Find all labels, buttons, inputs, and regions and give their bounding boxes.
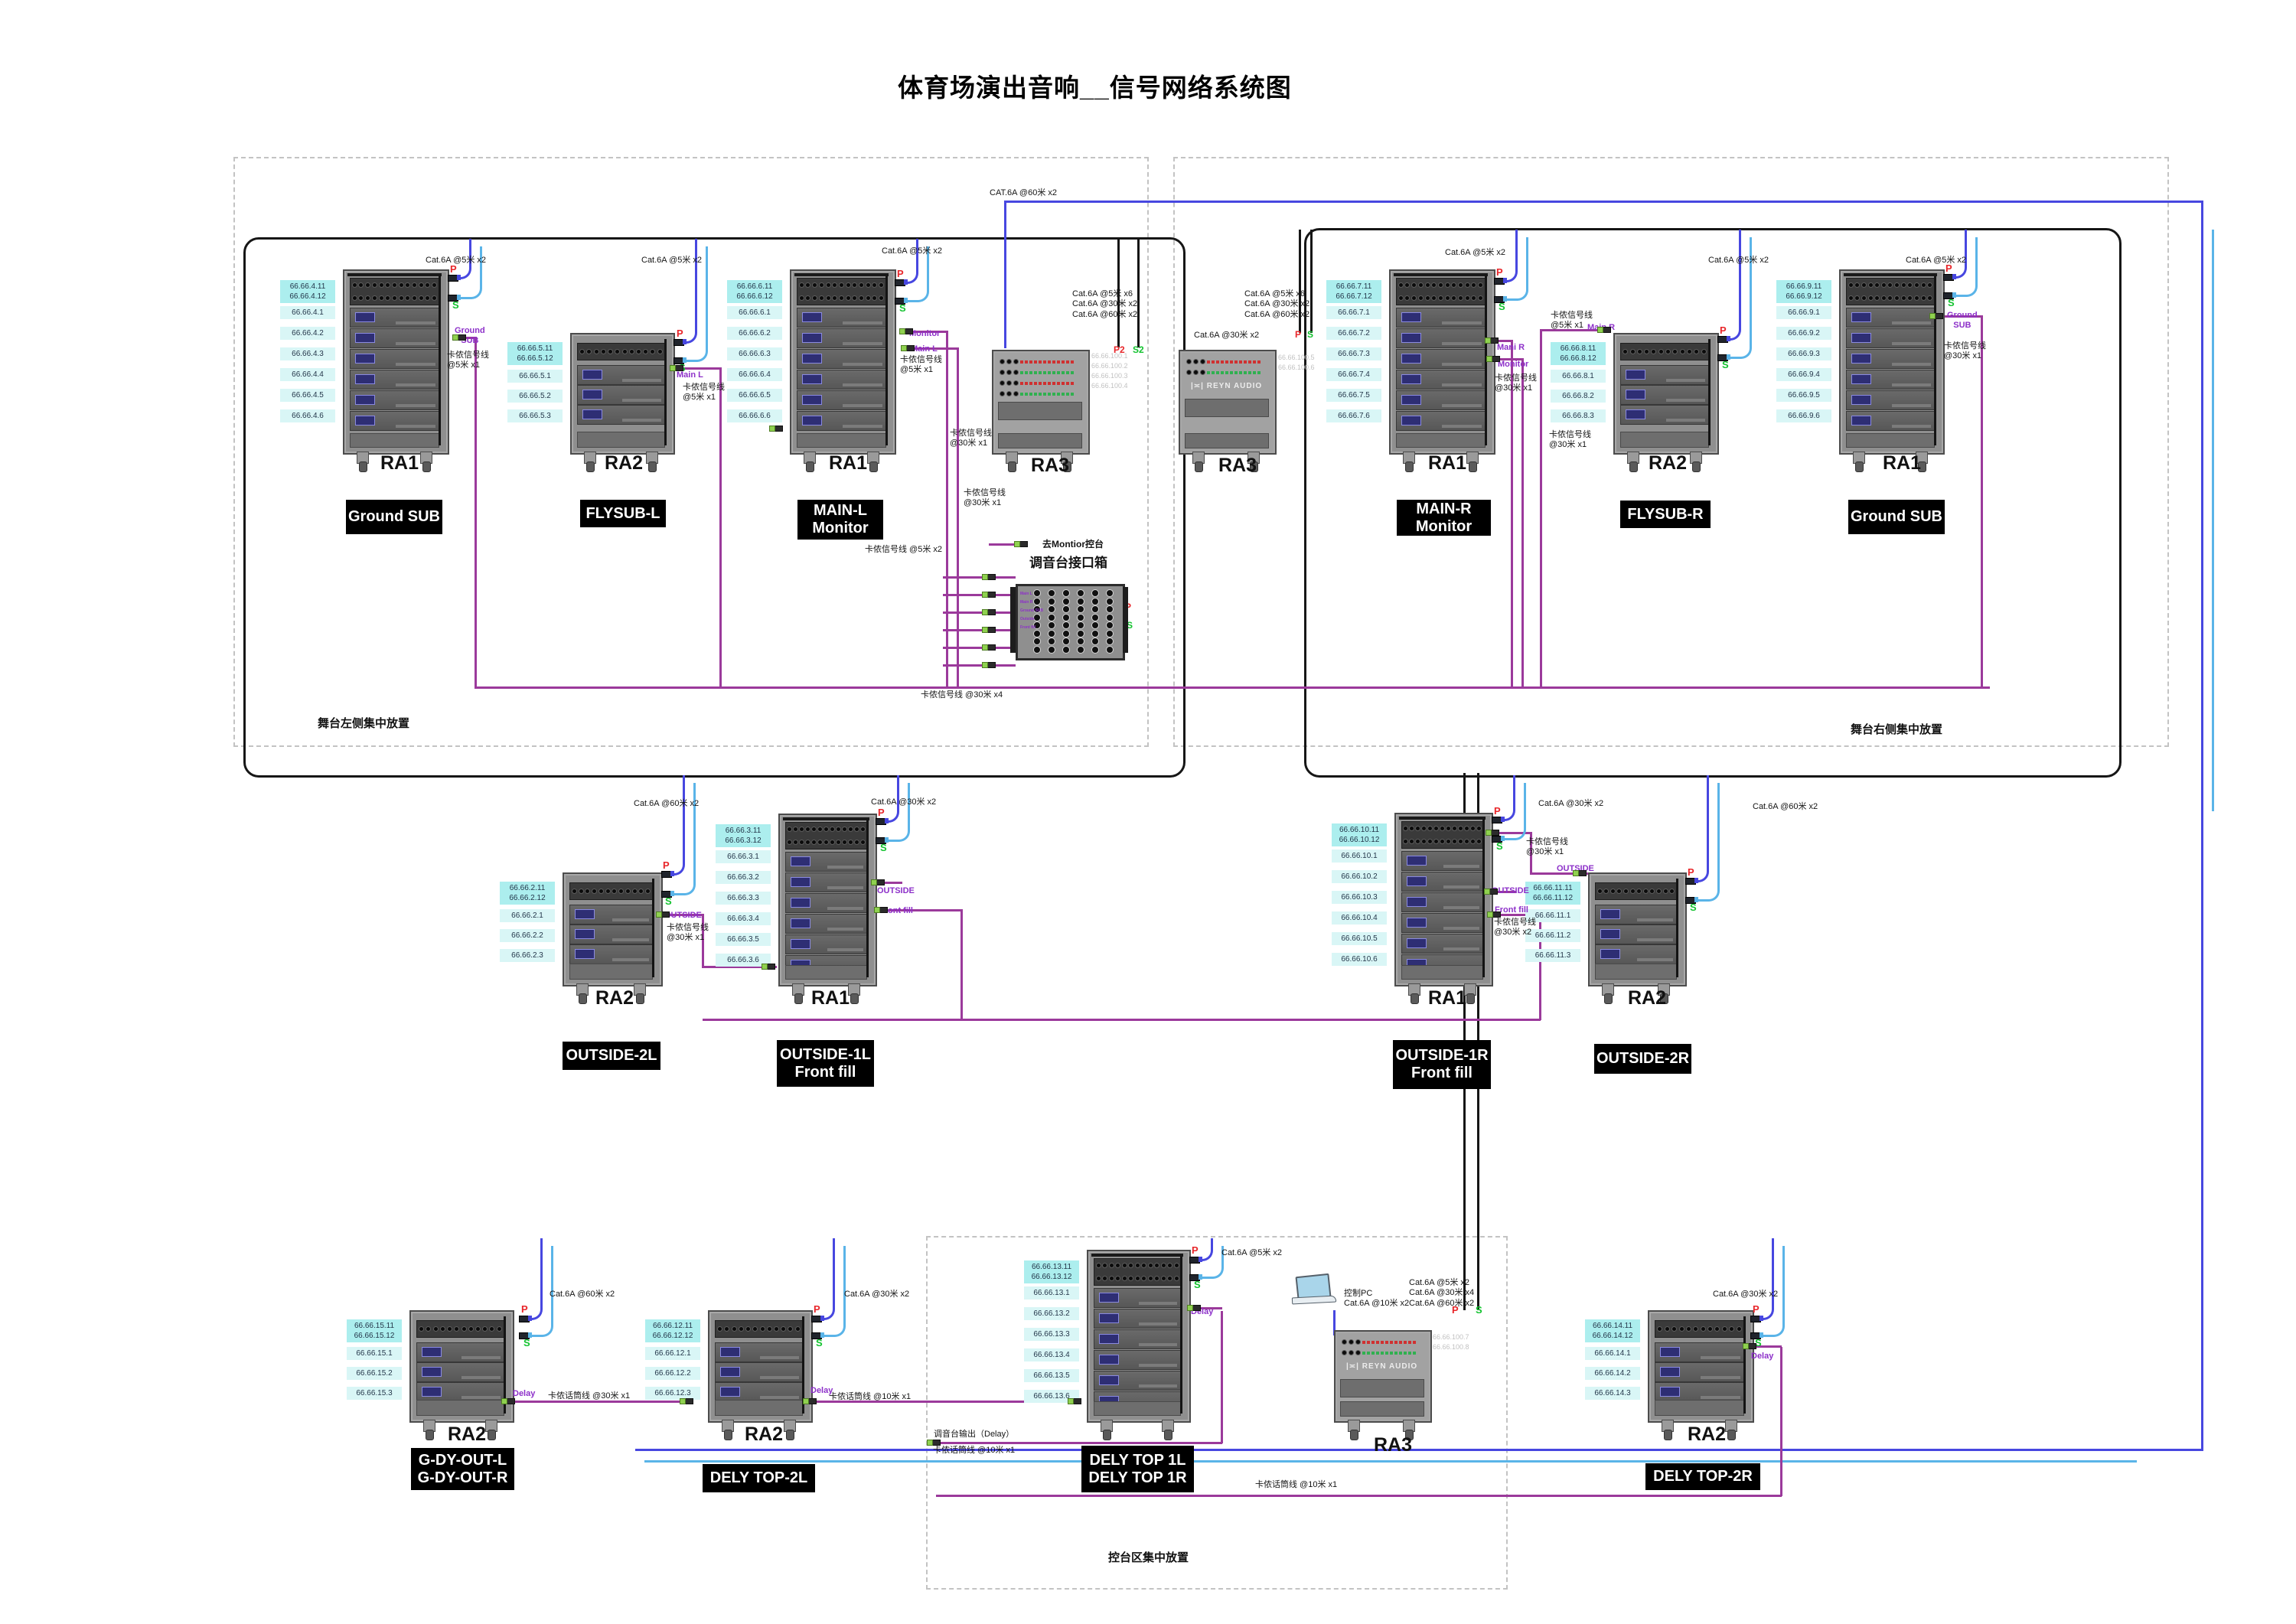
xlr-jack-icon [1148, 1263, 1153, 1268]
xlr-row [716, 1321, 802, 1337]
led-indicator [1062, 393, 1065, 396]
xlr-jack-icon [1651, 349, 1656, 354]
cable-label: P2 [1114, 344, 1125, 356]
connector-tip-icon [885, 818, 889, 823]
xlr-jack-icon [1091, 621, 1099, 629]
xlr-jack-icon [1637, 349, 1642, 354]
amp-handle [1443, 865, 1479, 868]
led-indicator [1399, 1352, 1402, 1355]
blank-panel [1595, 964, 1677, 980]
xlr-jack-icon [1403, 826, 1408, 831]
rack-name: RA3 [1031, 455, 1069, 477]
xlr-jack-icon [787, 840, 792, 845]
amplifier-module [1094, 1350, 1181, 1370]
amplifier-module [1595, 905, 1677, 925]
ip-address: 66.66.2.2 [500, 929, 555, 942]
network-connector-icon [1943, 274, 1954, 281]
connector-tip-icon [1068, 1398, 1074, 1404]
ip-address: 66.66.10.11 [1332, 825, 1387, 835]
ip-address: 66.66.7.6 [1326, 409, 1381, 422]
led-indicator [1394, 1341, 1397, 1344]
cable-line [703, 1019, 1541, 1021]
amp-display [1851, 395, 1871, 405]
cable-label: Cat.6A @30米 x2 [1194, 331, 1259, 341]
cable-line [957, 347, 959, 688]
cable-label: 卡侬信号线 @30米 x1 [1495, 373, 1537, 394]
xlr-jack-icon [1355, 1339, 1361, 1345]
cable-label: 卡侬信号线 @5米 x2 [865, 545, 942, 555]
ip-highlight-block: 66.66.5.1166.66.5.12 [507, 342, 563, 365]
name-plate: G-DY-OUT-LG-DY-OUT-R [411, 1448, 514, 1490]
xlr-jack-icon [732, 1326, 737, 1332]
xlr-jack-icon [405, 295, 410, 301]
rack-rail [1934, 276, 1936, 445]
indicator-row [1000, 390, 1076, 398]
ip-address: 66.66.3.4 [716, 912, 771, 925]
xlr-jack-icon [1421, 826, 1427, 831]
amp-handle [1637, 918, 1673, 921]
xlr-jack-icon [399, 295, 404, 301]
led-indicator [1034, 382, 1037, 385]
led-indicator [1239, 360, 1242, 364]
amp-display [1099, 1313, 1119, 1323]
amp-display [575, 929, 595, 939]
led-indicator [1248, 360, 1251, 364]
led-indicator [1071, 382, 1074, 385]
cable-label: OUTSIDE [877, 886, 915, 896]
network-connector-icon [1750, 1316, 1761, 1322]
ip-highlight-block: 66.66.2.1166.66.2.12 [500, 882, 555, 905]
led-indicator [1367, 1352, 1370, 1355]
name-plate-line: DELY TOP-2R [1653, 1468, 1753, 1485]
led-indicator [1020, 371, 1023, 374]
led-indicator [1390, 1352, 1393, 1355]
xlr-jack-icon [1186, 370, 1192, 375]
rack-name: RA1 [380, 452, 419, 474]
connector-tip-icon [803, 1398, 809, 1404]
xlr-jack-icon [1425, 282, 1430, 288]
amp-display [802, 395, 822, 405]
connector-tip-icon [904, 279, 908, 285]
caster-wheel [579, 993, 587, 1004]
cable-label: S [816, 1337, 823, 1349]
amp-display [1851, 333, 1871, 343]
panel-port-label: Main L [1020, 592, 1032, 596]
xlr-jack-icon [1465, 295, 1470, 301]
cable-label: 卡侬信号线 @30米 x1 [667, 923, 709, 944]
xlr-jack-icon [1000, 380, 1005, 386]
amp-display [1401, 374, 1421, 384]
xlr-jack-icon [1610, 889, 1616, 894]
xlr-jack-icon [1122, 1276, 1127, 1281]
name-plate-line: DELY TOP 1R [1088, 1469, 1186, 1487]
xlr-jack-icon [1657, 1326, 1662, 1332]
xlr-jack-icon [879, 282, 884, 288]
xlr-jack-icon [842, 827, 847, 832]
cable-label: Cat.6A @5米 x6 Cat.6A @30米 x2 Cat.6A @60米… [1244, 289, 1309, 320]
xlr-jack-icon [1154, 1276, 1159, 1281]
cable-label: Cat.6A @30米 x2 [1538, 799, 1603, 809]
cable-line [1137, 239, 1140, 347]
caster-foot [1403, 1420, 1415, 1432]
xlr-jack-icon [379, 282, 384, 288]
ip-address: 66.66.13.5 [1024, 1369, 1079, 1382]
cable-label: Delay [1751, 1352, 1773, 1361]
ip-address-faint: 66.66.100.5 66.66.100.6 [1278, 353, 1315, 373]
ip-address: 66.66.6.6 [727, 409, 782, 422]
xlr-jack-icon [1914, 295, 1919, 301]
xlr-jack-icon [1470, 826, 1476, 831]
xlr-connector-icon [1490, 356, 1500, 362]
xlr-jack-icon [832, 282, 837, 288]
cable-label: Cat.6A @5米 x2 [641, 256, 702, 266]
caster-foot [1403, 452, 1415, 464]
ip-address: 66.66.8.3 [1551, 409, 1606, 422]
caster-foot [357, 452, 369, 464]
amplifier-module [1396, 328, 1486, 348]
blank-panel [569, 964, 653, 980]
xlr-jack-icon [1077, 646, 1084, 654]
caster-wheel [1103, 1430, 1111, 1440]
cable-label: Cat.6A @5米 x2 [1708, 256, 1769, 266]
xlr-jack-icon [872, 282, 877, 288]
ip-address: 66.66.12.1 [645, 1347, 700, 1360]
connector-tip-icon [1929, 313, 1936, 319]
led-indicator [1207, 371, 1210, 374]
network-connector-icon [448, 275, 458, 282]
connector-tip-icon [982, 662, 988, 668]
xlr-jack-icon [1478, 295, 1483, 301]
amplifier-module [1396, 308, 1486, 328]
xlr-jack-icon [846, 295, 851, 301]
amp-display [355, 416, 375, 426]
rack-name: RA1 [811, 987, 850, 1009]
cable-label: 卡侬信号线 @30米 x1 [1944, 341, 1986, 362]
amp-handle [760, 1356, 799, 1359]
rack-rail [1708, 339, 1711, 445]
led-indicator [1404, 1352, 1407, 1355]
caster-wheel [724, 1430, 732, 1440]
xlr-jack-icon [1623, 349, 1628, 354]
cable-label: Main L [677, 370, 703, 380]
cable-label: P [814, 1303, 820, 1316]
xlr-jack-icon [489, 1326, 494, 1332]
rack-name: RA2 [745, 1423, 783, 1446]
amp-display [791, 939, 810, 949]
xlr-jack-icon [842, 840, 847, 845]
led-indicator [1367, 1341, 1370, 1344]
equipment-rack [1648, 1310, 1754, 1423]
connector-tip-icon [1484, 889, 1490, 895]
amp-display [1099, 1375, 1119, 1385]
amplifier-module [350, 328, 439, 348]
rack-ear [1123, 587, 1128, 653]
led-indicator [1413, 1341, 1416, 1344]
cable-line [1004, 201, 2203, 203]
xlr-jack-icon [1680, 349, 1685, 354]
ip-address: 66.66.10.2 [1332, 870, 1387, 883]
amp-display [355, 374, 375, 384]
xlr-jack-icon [848, 827, 853, 832]
ip-address: 66.66.10.4 [1332, 911, 1387, 925]
xlr-jack-icon [1141, 1263, 1146, 1268]
rack-rail [1482, 819, 1485, 977]
xlr-jack-icon [385, 282, 390, 288]
xlr-jack-icon [1167, 1263, 1172, 1268]
xlr-jack-icon [793, 827, 798, 832]
xlr-jack-icon [461, 1326, 467, 1332]
cable-label: S2 [1133, 344, 1144, 356]
led-indicator [1212, 360, 1215, 364]
amp-handle [396, 404, 435, 407]
connector-tip-icon [982, 592, 988, 598]
led-indicator [1257, 360, 1261, 364]
caster-wheel [1664, 1430, 1672, 1440]
amplifier-module [785, 872, 867, 892]
xlr-jack-icon [1096, 1276, 1101, 1281]
cable-label: 调音台接口箱 [1029, 556, 1107, 572]
ip-highlight-block: 66.66.4.1166.66.4.12 [280, 280, 335, 303]
cable-label: 卡侬话筒线 @10米 x1 [1255, 1480, 1337, 1490]
xlr-jack-icon [1464, 839, 1469, 844]
equipment-rack [1839, 269, 1945, 455]
amp-handle [1139, 1343, 1177, 1346]
led-indicator [1052, 360, 1055, 364]
patch-panel [797, 278, 886, 305]
ip-address: 66.66.5.3 [507, 409, 563, 422]
xlr-jack-icon [1200, 359, 1205, 364]
xlr-jack-icon [1342, 1350, 1347, 1355]
amp-handle [1637, 938, 1673, 941]
amp-display [1407, 856, 1427, 866]
amp-display [1099, 1355, 1119, 1365]
led-indicator [1248, 371, 1251, 374]
equipment-rack [1588, 872, 1687, 986]
caster-wheel [850, 993, 859, 1004]
xlr-jack-icon [1464, 826, 1469, 831]
patch-panel [1396, 278, 1486, 305]
led-indicator [1385, 1352, 1388, 1355]
led-indicator [1062, 360, 1065, 364]
xlr-jack-icon [1000, 370, 1005, 375]
cable-label: Cat.6A @5米 x2 [882, 246, 942, 256]
cable-label: 卡侬信号线 @30米 x2 [1494, 918, 1536, 938]
rack-name: RA3 [1374, 1434, 1412, 1456]
xlr-jack-icon [1881, 282, 1887, 288]
cable-label: S [1948, 297, 1955, 309]
caster-wheel [488, 1430, 496, 1440]
xlr-jack-icon [1901, 295, 1906, 301]
xlr-jack-icon [1115, 1263, 1120, 1268]
caster-foot [1408, 983, 1420, 996]
cable-line [1521, 358, 1524, 688]
led-indicator [1234, 360, 1238, 364]
amplifier-module [1396, 390, 1486, 410]
xlr-jack-icon [1458, 295, 1463, 301]
cable-label: Cat.6A @5米 x2 [1221, 1248, 1282, 1258]
equipment-rack [1389, 269, 1495, 455]
caster-wheel [1629, 461, 1638, 472]
caster-wheel [1405, 461, 1414, 472]
xlr-jack-icon [433, 1326, 439, 1332]
xlr-jack-icon [1694, 349, 1699, 354]
cable-label: S [899, 302, 906, 315]
ip-address: 66.66.3.3 [716, 892, 771, 905]
amplifier-module [416, 1362, 504, 1382]
ip-address: 66.66.7.11 [1326, 282, 1381, 292]
amp-display [1600, 929, 1620, 939]
caster-foot [576, 983, 589, 996]
led-indicator [1221, 360, 1224, 364]
cable-label: S [452, 299, 459, 311]
led-indicator [1207, 360, 1210, 364]
connector-tip-icon [528, 1316, 532, 1321]
xlr-jack-icon [1470, 839, 1476, 844]
led-indicator [1025, 371, 1028, 374]
xlr-jack-icon [805, 295, 810, 301]
caster-foot [485, 1420, 497, 1432]
led-indicator [1039, 371, 1042, 374]
name-plate-line: Front fill [1411, 1065, 1473, 1082]
amplifier-module [1846, 370, 1935, 390]
led-indicator [1020, 393, 1023, 396]
amp-display [1626, 370, 1645, 380]
amp-handle [843, 383, 882, 386]
amp-handle [461, 1356, 501, 1359]
amplifier-module [1094, 1329, 1181, 1349]
xlr-jack-icon [612, 889, 617, 894]
connector-tip-icon [1952, 274, 1956, 279]
xlr-connector-icon [1489, 830, 1499, 836]
amp-handle [612, 958, 649, 961]
xlr-jack-icon [1415, 826, 1420, 831]
led-indicator [1225, 371, 1228, 374]
connector-tip-icon [1573, 870, 1579, 876]
xlr-jack-icon [799, 840, 804, 845]
led-indicator [1066, 393, 1069, 396]
xlr-jack-icon [1048, 614, 1055, 621]
amplifier-module [797, 308, 886, 328]
xlr-jack-icon [1006, 359, 1012, 364]
xlr-jack-icon [1421, 839, 1427, 844]
xlr-jack-icon [1848, 282, 1854, 288]
xlr-jack-icon [1062, 646, 1070, 654]
ip-address: 66.66.11.12 [1525, 893, 1580, 903]
amp-handle [1139, 1364, 1177, 1367]
xlr-jack-icon [1418, 295, 1424, 301]
ip-address: 66.66.3.12 [716, 836, 771, 846]
xlr-jack-icon [1106, 621, 1114, 629]
xlr-jack-icon [1446, 826, 1451, 831]
xlr-jack-icon [805, 840, 810, 845]
amp-display [582, 409, 602, 419]
ip-highlight-block: 66.66.15.1166.66.15.12 [347, 1319, 402, 1342]
xlr-jack-icon [1349, 1339, 1354, 1345]
ip-address: 66.66.9.1 [1776, 306, 1831, 319]
amp-display [1660, 1387, 1680, 1397]
amp-handle [760, 1376, 799, 1379]
blank-panel [1094, 1401, 1181, 1416]
ip-address: 66.66.12.2 [645, 1367, 700, 1380]
amplifier-module [350, 370, 439, 390]
xlr-jack-icon [846, 282, 851, 288]
xlr-jack-icon [497, 1326, 502, 1332]
xlr-jack-icon [1679, 1326, 1684, 1332]
xlr-jack-icon [1701, 349, 1707, 354]
xlr-connector-icon [905, 345, 915, 351]
xlr-jack-icon [1921, 282, 1926, 288]
cable-label: Delay [513, 1389, 535, 1399]
xlr-jack-icon [1062, 589, 1070, 597]
cable-label: P [1496, 266, 1503, 279]
ip-address: 66.66.5.2 [507, 390, 563, 403]
cable-label: S [880, 842, 887, 854]
xlr-jack-icon [365, 295, 370, 301]
xlr-row [351, 279, 439, 292]
xlr-jack-icon [752, 1326, 758, 1332]
xlr-jack-icon [795, 1326, 801, 1332]
ip-highlight-block: 66.66.6.1166.66.6.12 [727, 280, 782, 303]
caster-foot [1662, 1420, 1674, 1432]
led-indicator [1385, 1341, 1388, 1344]
patch-panel [1094, 1258, 1181, 1286]
xlr-connector-icon [986, 574, 996, 580]
xlr-jack-icon [585, 889, 590, 894]
cable-label: 卡侬信号线 @30米 x1 [950, 429, 992, 449]
amp-handle [1139, 1322, 1177, 1326]
xlr-jack-icon [1403, 839, 1408, 844]
xlr-jack-icon [432, 295, 437, 301]
cable-label: OUTSIDE [664, 911, 702, 921]
amp-handle [1443, 906, 1479, 909]
amp-handle [1139, 1384, 1177, 1388]
led-indicator [1043, 382, 1046, 385]
xlr-jack-icon [1122, 1263, 1127, 1268]
rack-top-bar [1844, 273, 1937, 276]
connector-tip-icon [680, 1398, 686, 1404]
ip-address: 66.66.15.2 [347, 1367, 402, 1380]
xlr-row [1397, 279, 1485, 292]
amp-display [1407, 918, 1427, 928]
xlr-connector-icon [986, 592, 996, 598]
xlr-jack-icon [1868, 295, 1874, 301]
ip-highlight-block: 66.66.3.1166.66.3.12 [716, 824, 771, 847]
amp-handle [622, 419, 661, 422]
amplifier-module [1401, 892, 1483, 912]
xlr-jack-icon [1154, 1263, 1159, 1268]
connector-tip-icon [683, 339, 687, 344]
xlr-jack-icon [1062, 614, 1070, 621]
cat6a-secondary-cable [1694, 783, 1720, 902]
xlr-jack-icon [432, 282, 437, 288]
xlr-jack-icon [1729, 1326, 1734, 1332]
name-plate: MAIN-RMonitor [1397, 500, 1491, 536]
blank-panel [1655, 1400, 1744, 1416]
page-title: 体育场演出音响__信号网络系统图 [898, 67, 1292, 104]
xlr-jack-icon [1077, 614, 1084, 621]
cable-label: S [1690, 902, 1697, 914]
led-indicator [1413, 1352, 1416, 1355]
ip-address: 66.66.13.3 [1024, 1328, 1079, 1341]
led-indicator [1253, 360, 1256, 364]
ip-highlight-block: 66.66.12.1166.66.12.12 [645, 1319, 700, 1342]
cable-label: S [665, 895, 672, 908]
connector-tip-icon [1486, 356, 1492, 362]
xlr-jack-icon [1440, 839, 1445, 844]
xlr-jack-icon [1106, 605, 1114, 613]
cable-line [946, 331, 948, 688]
led-indicator [1020, 360, 1023, 364]
